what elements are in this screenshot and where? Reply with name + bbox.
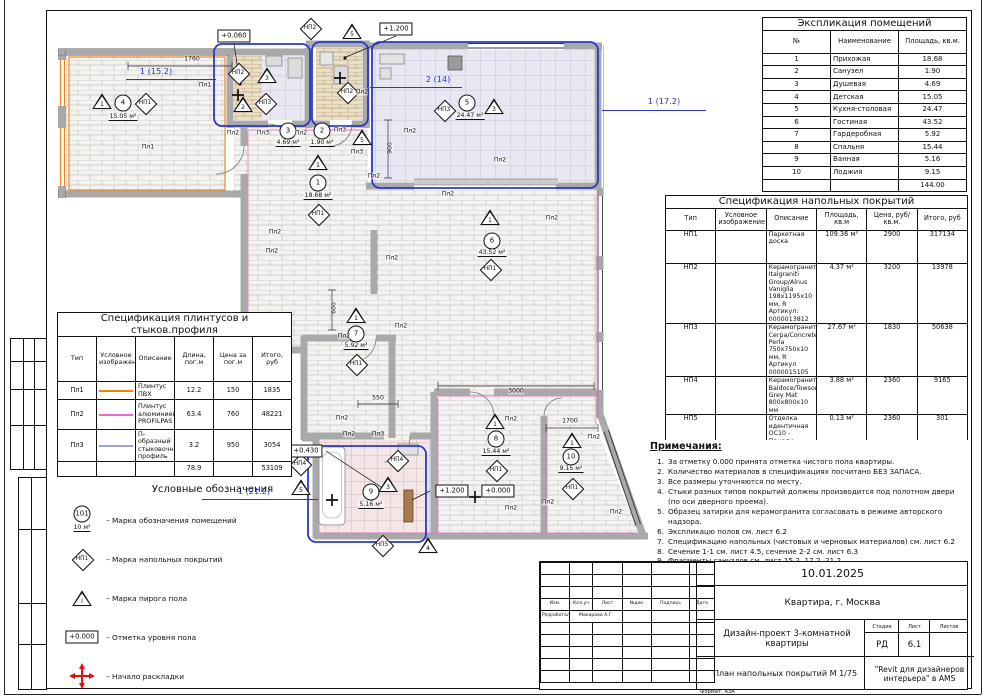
revision-cell	[652, 575, 690, 587]
legend-panel: Условные обозначения 10110 м²– Марка обо…	[60, 484, 325, 699]
revision-cell	[570, 575, 593, 587]
margin-stamp-boxes-upper	[10, 338, 47, 470]
plinth-type: Пл3	[58, 430, 97, 462]
covering-swatch	[716, 324, 766, 377]
spacer	[831, 179, 899, 192]
room-area: 15.05	[899, 91, 967, 104]
plinth-desc: Плинтус ПВХ	[136, 382, 175, 400]
floor-spec-row: НП1Паркетная доска109.36 м²2900317134	[666, 230, 968, 263]
room-name: Лоджия	[831, 166, 899, 179]
total-cell	[58, 462, 97, 477]
room-area: 9.15	[899, 166, 967, 179]
plinth-length: 63.4	[175, 400, 214, 430]
covering-area: 3.88 м²	[816, 377, 866, 415]
revision-row	[541, 623, 715, 635]
covering-desc: Керамогранит Cerpa/Concrete Perla 750x75…	[766, 324, 816, 377]
title-block: Изм.Кол.учЛист№док.ПодписьДатаРазработал…	[539, 561, 968, 690]
room-number: 7	[763, 129, 831, 142]
plinth-spec-title: Спецификация плинтусов и стыков.профиля	[58, 313, 292, 337]
revision-cell	[593, 647, 623, 659]
revision-cell	[652, 647, 690, 659]
plinth-type: Пл2	[58, 400, 97, 430]
legend-label: – Марка напольных покрытий	[106, 555, 222, 564]
floor-spec-header: Тип Условное изображение Описание Площад…	[666, 208, 968, 230]
room-number: 8	[763, 141, 831, 154]
room-number: 3	[763, 78, 831, 91]
legend-label: – Начало раскладки	[106, 672, 184, 681]
covering-swatch	[716, 377, 766, 415]
total-area: 144.00	[899, 179, 967, 192]
plinth-sum: 3054	[253, 430, 292, 462]
total-cell: 53109	[253, 462, 292, 477]
revision-cell	[652, 659, 690, 671]
room-area: 43.52	[899, 116, 967, 129]
revision-cell	[541, 671, 570, 683]
explication-title: Экспликация помещений	[763, 18, 967, 31]
covering-area: 109.36 м²	[816, 230, 866, 263]
room-name: Душевая	[831, 78, 899, 91]
room-number: 1	[763, 53, 831, 66]
plinth-row: Пл1Плинтус ПВХ12.21501835	[58, 382, 292, 400]
legend-area-label: 10 м²	[74, 524, 91, 532]
revision-cell	[570, 623, 593, 635]
note-text: За отметку 0.000 принята отметка чистого…	[668, 457, 894, 467]
titleblock-object: Квартира, г. Москва	[696, 585, 968, 620]
room-number: 10	[763, 166, 831, 179]
revision-cell	[570, 563, 593, 575]
explication-row: 6Гостиная43.52	[763, 116, 967, 129]
note-item: 8.Сечение 1-1 см. лист 4.5, сечение 2-2 …	[650, 547, 968, 557]
format-label: Формат: А3А	[700, 689, 735, 695]
revision-cell: №док.	[623, 599, 652, 611]
legend-item: +0.000– Отметка уровня пола	[60, 624, 325, 650]
plinth-desc: Плинтус алюминиевый PROFILPAS	[136, 400, 175, 430]
plinth-spec-header: Тип Условное изображение Описание Длина,…	[58, 337, 292, 382]
note-text: Все размеры уточняются по месту.	[668, 477, 802, 487]
legend-label: – Марка пирога пола	[106, 594, 187, 603]
floor-spec-row: НП3Керамогранит Cerpa/Concrete Perla 750…	[666, 324, 968, 377]
room-number: 5	[763, 103, 831, 116]
revision-cell	[623, 575, 652, 587]
floor-pie-mark: I	[72, 590, 92, 606]
notes-panel: Примечания: 1.За отметку 0.000 принята о…	[650, 440, 968, 566]
room-area: 5.92	[899, 129, 967, 142]
plinth-spec-panel: Спецификация плинтусов и стыков.профиля …	[57, 312, 292, 477]
room-number: 4	[763, 91, 831, 104]
plinth-sum: 1835	[253, 382, 292, 400]
legend-item: – Начало раскладки	[60, 663, 325, 689]
revision-cell	[541, 635, 570, 647]
plinth-swatch	[97, 382, 136, 400]
note-number: 5.	[650, 507, 664, 527]
revision-grid: Изм.Кол.учЛист№док.ПодписьДатаРазработал…	[540, 562, 696, 689]
revision-row	[541, 575, 715, 587]
layout-start-icon	[60, 663, 106, 689]
revision-cell	[570, 647, 593, 659]
stamp-divider	[11, 425, 46, 426]
room-name: Гостиная	[831, 116, 899, 129]
total-cell	[97, 462, 136, 477]
note-text: Количество материалов в спецификациях по…	[668, 467, 922, 477]
revision-cell	[570, 587, 593, 599]
note-number: 3.	[650, 477, 664, 487]
revision-row	[541, 587, 715, 599]
note-text: Образец затирки для керамогранита соглас…	[668, 507, 968, 527]
room-mark-icon: 10110 м²	[60, 507, 106, 533]
revision-cell	[652, 611, 690, 623]
explication-row: 10Лоджия9.15	[763, 166, 967, 179]
covering-price: 2360	[867, 377, 917, 415]
revision-cell	[593, 635, 623, 647]
total-cell	[136, 462, 175, 477]
covering-sum: 13978	[917, 263, 967, 323]
room-name: Гардеробная	[831, 129, 899, 142]
revision-cell: Макарова А.Г.	[570, 611, 623, 623]
room-name: Прихожая	[831, 53, 899, 66]
legend-item: 10110 м²– Марка обозначения помещений	[60, 507, 325, 533]
note-text: Сечение 1-1 см. лист 4.5, сечение 2-2 см…	[668, 547, 858, 557]
room-number: 9	[763, 154, 831, 167]
revision-cell: Лист	[593, 599, 623, 611]
total-cell	[214, 462, 253, 477]
note-item: 5.Образец затирки для керамогранита согл…	[650, 507, 968, 527]
revision-cell	[541, 647, 570, 659]
titleblock-org: "Revit для дизайнеров интерьера" в AMS	[864, 656, 974, 690]
covering-type: НП4	[666, 377, 716, 415]
drawing-sheet: НП1НП2НП3НП2НП2НП3НП1НП1НП1НП4НП4НП1НП1Н…	[0, 0, 988, 699]
note-item: 7.Спецификацию напольных (чистовых и чер…	[650, 537, 968, 547]
covering-swatch	[716, 230, 766, 263]
plinth-swatch	[97, 400, 136, 430]
room-area: 1.90	[899, 66, 967, 79]
stamp-divider	[11, 389, 46, 390]
revision-cell	[652, 587, 690, 599]
note-item: 1.За отметку 0.000 принята отметка чисто…	[650, 457, 968, 467]
total-cell: 78.9	[175, 462, 214, 477]
floor-spec-row: НП2Керамогранит Italgraniti Group/Alnus …	[666, 263, 968, 323]
explication-total-row: 144.00	[763, 179, 967, 192]
room-name: Ванная	[831, 154, 899, 167]
room-explication-panel: Экспликация помещений № Наименование Пло…	[762, 17, 967, 192]
floor-spec-panel: Спецификация напольных покрытий Тип Усло…	[665, 195, 968, 474]
note-number: 1.	[650, 457, 664, 467]
room-area: 18.68	[899, 53, 967, 66]
plinth-desc: П-образный стыковочный профиль	[136, 430, 175, 462]
plinth-line-swatch	[99, 390, 133, 392]
legend-item: НП1– Марка напольных покрытий	[60, 546, 325, 572]
note-number: 7.	[650, 537, 664, 547]
covering-price: 1830	[867, 324, 917, 377]
revision-row	[541, 635, 715, 647]
plinth-length: 12.2	[175, 382, 214, 400]
note-text: Экспликацю полов см. лист 6.2	[668, 527, 787, 537]
covering-sum: 317134	[917, 230, 967, 263]
stage-value: РД	[864, 632, 899, 657]
covering-price: 3200	[867, 263, 917, 323]
revision-cell	[623, 659, 652, 671]
revision-cell	[623, 635, 652, 647]
stamp-divider	[23, 339, 24, 469]
revision-cell: Кол.уч	[570, 599, 593, 611]
covering-sum: 50638	[917, 324, 967, 377]
covering-desc: Керамогранит Baldoce/Towson Grey Mat 800…	[766, 377, 816, 415]
revision-row	[541, 671, 715, 683]
legend-label: – Марка обозначения помещений	[106, 516, 237, 525]
stage-label: Стадия	[864, 619, 899, 633]
plinth-sum: 48221	[253, 400, 292, 430]
revision-cell	[541, 563, 570, 575]
legend-label: – Отметка уровня пола	[106, 633, 196, 642]
spacer	[763, 179, 831, 192]
covering-swatch	[716, 263, 766, 323]
level-mark-icon: +0.000	[60, 624, 106, 650]
sheet-number: 6.1	[898, 632, 930, 657]
covering-desc: Керамогранит Italgraniti Group/Alnus Van…	[766, 263, 816, 323]
plinth-row: Пл3П-образный стыковочный профиль3.29503…	[58, 430, 292, 462]
covering-area: 27.67 м²	[816, 324, 866, 377]
explication-row: 3Душевая4.69	[763, 78, 967, 91]
titleblock-sheet-title: План напольных покрытий М 1/75	[696, 656, 873, 690]
explication-header: № Наименование Площадь, кв.м.	[763, 30, 967, 53]
covering-area: 4.37 м²	[816, 263, 866, 323]
room-area: 15.44	[899, 141, 967, 154]
revision-cell: Изм.	[541, 599, 570, 611]
plinth-row: Пл2Плинтус алюминиевый PROFILPAS63.47604…	[58, 400, 292, 430]
sheets-label: Листов	[929, 619, 968, 633]
revision-cell	[570, 671, 593, 683]
room-area: 24.47	[899, 103, 967, 116]
floor-level-mark: +0.000	[65, 631, 98, 644]
explication-row: 2Санузел1.90	[763, 66, 967, 79]
revision-row	[541, 659, 715, 671]
revision-cell: Разработал	[541, 611, 570, 623]
revision-cell	[652, 563, 690, 575]
covering-type: НП3	[666, 324, 716, 377]
covering-type: НП2	[666, 263, 716, 323]
explication-row: 8Спальня15.44	[763, 141, 967, 154]
legend-item: I– Марка пирога пола	[60, 585, 325, 611]
sheet-label: Лист	[898, 619, 930, 633]
stamp-divider	[34, 339, 35, 469]
revision-cell	[593, 575, 623, 587]
explication-row: 1Прихожая18.68	[763, 53, 967, 66]
revision-cell	[593, 563, 623, 575]
revision-cell	[593, 671, 623, 683]
room-number-mark: 101	[74, 506, 91, 523]
sheet-right-edge	[981, 0, 982, 694]
room-number: 2	[763, 66, 831, 79]
revision-cell	[652, 671, 690, 683]
room-area: 4.69	[899, 78, 967, 91]
explication-row: 9Ванная5.16	[763, 154, 967, 167]
revision-cell	[652, 623, 690, 635]
revision-cell: Подпись	[652, 599, 690, 611]
note-number: 2.	[650, 467, 664, 477]
covering-sum: 9165	[917, 377, 967, 415]
explication-row: 5Кухня-столовая24.47	[763, 103, 967, 116]
titleblock-project: Дизайн-проект 3-комнатной квартиры	[696, 619, 877, 657]
explication-row: 7Гардеробная5.92	[763, 129, 967, 142]
revision-cell	[541, 587, 570, 599]
plinth-price: 150	[214, 382, 253, 400]
revision-cell	[623, 671, 652, 683]
sheets-count	[929, 632, 968, 657]
covering-desc: Паркетная доска	[766, 230, 816, 263]
plinth-type: Пл1	[58, 382, 97, 400]
revision-cell	[652, 635, 690, 647]
stamp-divider	[11, 361, 46, 362]
note-item: 2.Количество материалов в спецификациях …	[650, 467, 968, 477]
floor-spec-title: Спецификация напольных покрытий	[666, 196, 968, 209]
explication-row: 4Детская15.05	[763, 91, 967, 104]
plinth-swatch	[97, 430, 136, 462]
margin-stamp-boxes-lower	[18, 477, 47, 690]
revision-cell	[541, 623, 570, 635]
revision-cell	[623, 611, 652, 623]
covering-type: НП1	[666, 230, 716, 263]
plinth-price: 950	[214, 430, 253, 462]
stamp-divider	[19, 603, 46, 604]
room-name: Кухня-столовая	[831, 103, 899, 116]
pie-mark-icon: I	[60, 585, 106, 611]
revision-cell	[541, 575, 570, 587]
covering-price: 2900	[867, 230, 917, 263]
note-number: 8.	[650, 547, 664, 557]
revision-cell	[623, 587, 652, 599]
revision-cell	[570, 635, 593, 647]
revision-cell	[593, 587, 623, 599]
note-item: 4.Стыки разных типов покрытий должны про…	[650, 487, 968, 507]
floor-spec-row: НП4Керамогранит Baldoce/Towson Grey Mat …	[666, 377, 968, 415]
floor-covering-mark: НП1	[70, 547, 94, 571]
revision-cell	[623, 647, 652, 659]
revision-cell	[623, 563, 652, 575]
revision-cell	[541, 659, 570, 671]
plinth-line-swatch	[99, 414, 133, 416]
note-item: 6.Экспликацю полов см. лист 6.2	[650, 527, 968, 537]
revision-cell	[593, 659, 623, 671]
note-number: 6.	[650, 527, 664, 537]
revision-cell	[570, 659, 593, 671]
plinth-line-swatch	[99, 445, 133, 447]
stamp-divider	[19, 644, 46, 645]
plinth-price: 760	[214, 400, 253, 430]
stamp-divider	[19, 529, 46, 530]
room-name: Детская	[831, 91, 899, 104]
revision-cell	[593, 623, 623, 635]
note-item: 3.Все размеры уточняются по месту.	[650, 477, 968, 487]
revision-row	[541, 563, 715, 575]
revision-row: РазработалМакарова А.Г.	[541, 611, 715, 623]
plinth-total-row: 78.953109	[58, 462, 292, 477]
sheet-left-edge	[4, 0, 5, 694]
room-area: 5.16	[899, 154, 967, 167]
revision-row	[541, 647, 715, 659]
room-name: Спальня	[831, 141, 899, 154]
room-name: Санузел	[831, 66, 899, 79]
floor-mark-icon: НП1	[60, 546, 106, 572]
titleblock-date: 10.01.2025	[696, 561, 968, 585]
legend-title: Условные обозначения	[100, 484, 325, 495]
notes-title: Примечания:	[650, 440, 968, 453]
note-text: Стыки разных типов покрытий должны произ…	[668, 487, 968, 507]
note-number: 4.	[650, 487, 664, 507]
room-number: 6	[763, 116, 831, 129]
note-text: Спецификацию напольных (чистовых и черно…	[668, 537, 955, 547]
revision-cell	[623, 623, 652, 635]
plinth-length: 3.2	[175, 430, 214, 462]
revision-row: Изм.Кол.учЛист№док.ПодписьДата	[541, 599, 715, 611]
stamp-divider	[31, 478, 32, 689]
